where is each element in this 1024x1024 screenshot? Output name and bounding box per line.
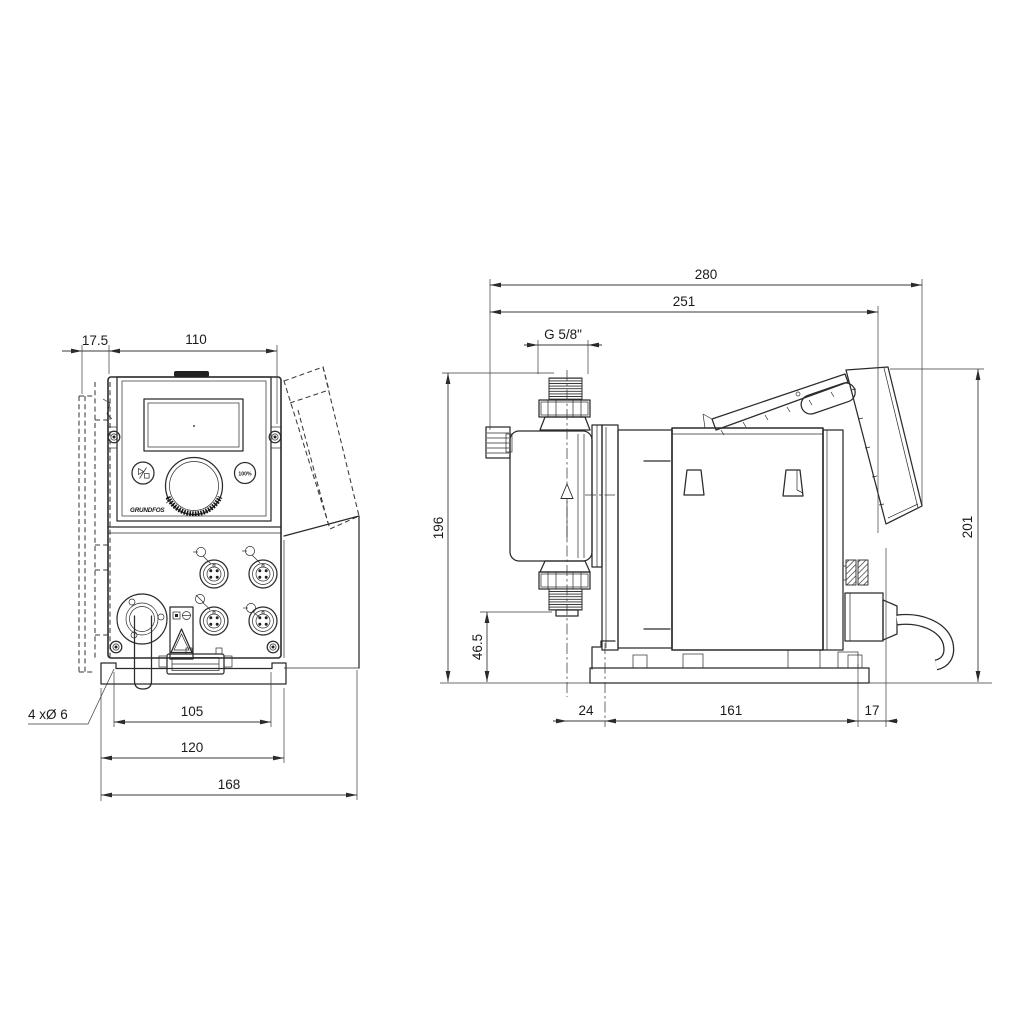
grundfos-logo: GRUNDFOS <box>130 499 172 514</box>
screw-bottom-left <box>110 641 122 653</box>
side-view-dimensions: 280 251 G 5/8" 196 46.5 <box>431 267 984 727</box>
pump-head-body <box>510 431 592 561</box>
connector-socket[interactable] <box>200 607 228 635</box>
hood-panel <box>846 367 922 524</box>
dimensional-drawing-page: 100% GRUNDFOS <box>0 0 1024 1024</box>
outlet-thread <box>549 589 582 610</box>
hood-clip <box>783 470 803 496</box>
capacity-button-label: 100% <box>238 472 252 478</box>
dim-height-to-connection: 196 <box>431 517 446 540</box>
dim-overall-height: 201 <box>960 516 975 539</box>
dosing-head <box>486 370 615 697</box>
signal-connectors <box>193 546 277 635</box>
dim-outlet-height: 46.5 <box>470 634 485 660</box>
cable-gland-front <box>117 594 167 689</box>
display <box>144 399 243 451</box>
start-stop-button[interactable] <box>132 462 154 484</box>
dim-plate-depth: 161 <box>720 703 743 718</box>
screw-bottom-right <box>267 641 279 653</box>
dim-overall-depth: 280 <box>695 267 718 282</box>
dim-housing-width: 110 <box>185 332 207 347</box>
dim-depth-to-hood: 251 <box>673 294 696 309</box>
dim-overall-width: 168 <box>218 777 241 792</box>
flow-direction-arrow <box>561 484 573 540</box>
cable-front <box>135 616 152 689</box>
wall-bracket-hidden <box>79 382 112 672</box>
side-view: 280 251 G 5/8" 196 46.5 <box>431 267 992 727</box>
warning-triangle-icon <box>171 629 192 653</box>
screw-top-left <box>108 431 120 443</box>
pump-body-side <box>602 425 843 650</box>
knob-knurl <box>168 497 220 514</box>
capacity-button[interactable]: 100% <box>235 463 256 484</box>
dim-mounting-holes: 4 xØ 6 <box>28 707 68 722</box>
dim-hole-spacing: 105 <box>181 704 204 719</box>
mains-cable-gland <box>843 560 949 665</box>
inlet-nut <box>539 400 590 417</box>
rear-threaded-connector <box>846 560 856 585</box>
front-view-dimensions: 17.5 110 105 120 168 4 xØ 6 <box>28 332 357 801</box>
hood-open-side <box>703 367 922 524</box>
grundfos-logo-text: GRUNDFOS <box>130 507 165 514</box>
warning-label <box>170 607 193 659</box>
pump-dimensional-drawing: 100% GRUNDFOS <box>0 0 1024 1024</box>
connector-socket[interactable] <box>200 560 228 588</box>
start-stop-icon <box>139 468 150 479</box>
front-view: 100% GRUNDFOS <box>28 332 359 801</box>
dim-front-overhang: 24 <box>578 703 594 718</box>
hood-open-front <box>284 367 359 668</box>
hood-plate <box>712 374 848 430</box>
panel-top-tab <box>174 371 209 377</box>
dim-connection-thread: G 5/8" <box>544 327 582 342</box>
connector-socket[interactable] <box>249 607 277 635</box>
control-panel: 100% GRUNDFOS <box>117 371 271 521</box>
deaeration-valve-knob[interactable] <box>486 427 512 458</box>
dim-plate-width: 120 <box>181 740 204 755</box>
outlet-nut <box>539 572 590 589</box>
dim-bracket-offset: 17.5 <box>82 333 108 348</box>
adjustment-knob[interactable] <box>166 458 223 515</box>
hood-clip <box>684 470 704 495</box>
connector-socket[interactable] <box>249 560 277 588</box>
motor-housing <box>672 428 823 650</box>
dim-rear-overhang: 17 <box>864 703 879 718</box>
inlet-thread <box>549 378 582 400</box>
hood-handle[interactable] <box>799 380 858 416</box>
